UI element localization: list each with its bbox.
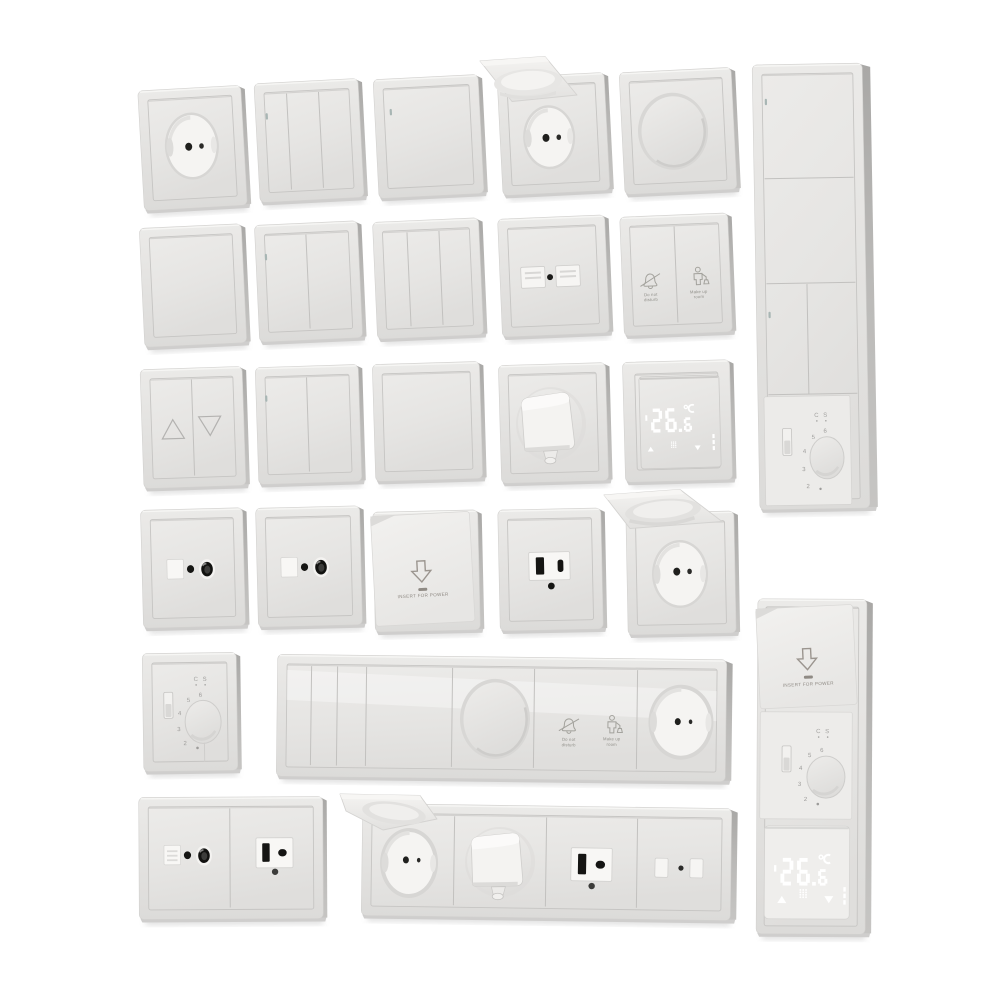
- svg-text:Make up: Make up: [603, 736, 621, 741]
- svg-text:S: S: [825, 729, 829, 735]
- svg-text:room: room: [694, 294, 705, 299]
- svg-text:disturb: disturb: [562, 742, 576, 747]
- svg-text:S: S: [203, 677, 207, 683]
- svg-text:C: C: [816, 729, 821, 735]
- svg-text:disturb: disturb: [644, 297, 659, 303]
- svg-text:S: S: [823, 413, 827, 419]
- svg-text:C: C: [814, 413, 819, 419]
- svg-text:Do not: Do not: [562, 737, 576, 742]
- svg-text:room: room: [606, 742, 617, 747]
- svg-text:C: C: [194, 677, 199, 683]
